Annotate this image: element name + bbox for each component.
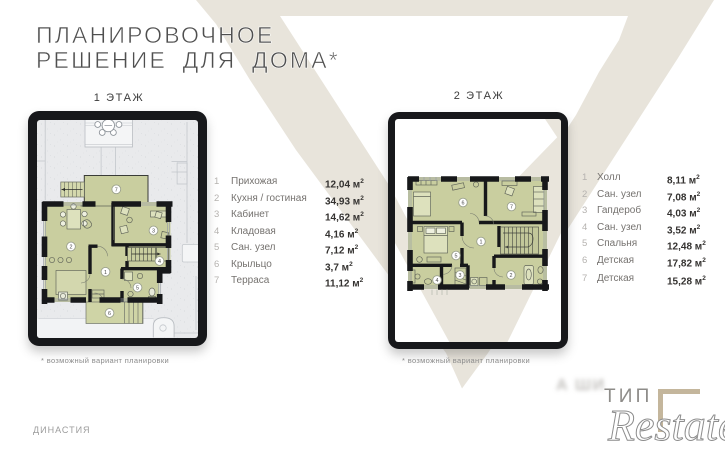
svg-text:6: 6: [108, 311, 111, 317]
